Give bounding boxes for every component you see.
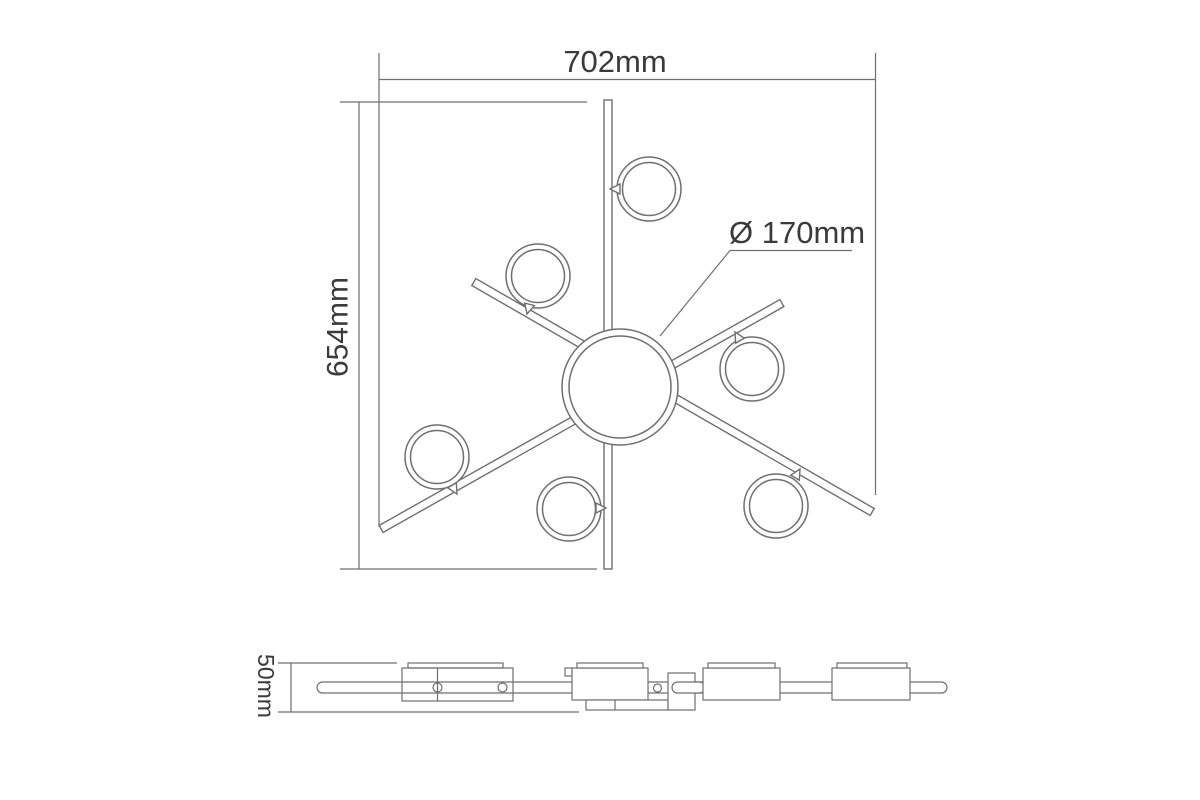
lamp-ring-5-outer xyxy=(537,477,601,541)
lamp-ring-5 xyxy=(537,477,606,541)
technical-drawing: 702mm 654mm Ø 170mm xyxy=(0,0,1200,800)
side-height-dimension-label: 50mm xyxy=(253,654,279,718)
width-dimension-label: 702mm xyxy=(563,44,666,79)
height-dimension-label: 654mm xyxy=(322,277,355,377)
center-disc-outer xyxy=(562,329,678,445)
side-housing-d-body xyxy=(832,668,910,700)
side-housing-c xyxy=(703,663,780,700)
lamp-ring-3-outer xyxy=(720,337,784,401)
lamp-ring-1-outer xyxy=(617,157,681,221)
side-housing-a-cap xyxy=(408,663,503,668)
side-housing-c-body xyxy=(703,668,780,700)
lamp-ring-1 xyxy=(610,157,681,221)
disc-diameter-leader-line xyxy=(660,251,852,337)
disc-diameter-label: Ø 170mm xyxy=(729,215,865,250)
side-under-box xyxy=(586,700,668,710)
lamp-ring-6 xyxy=(744,467,808,539)
lamp-ring-6-outer xyxy=(744,474,808,538)
side-center-rod-stub xyxy=(672,682,705,693)
side-housing-c-cap xyxy=(708,663,775,668)
side-housing-d xyxy=(832,663,910,700)
lamp-ring-2-outer xyxy=(506,244,570,308)
side-housing-b-body xyxy=(572,668,648,700)
side-housing-b-notch xyxy=(565,668,572,676)
side-view: 50mm xyxy=(253,654,947,718)
top-view-fixture xyxy=(379,100,874,569)
lamp-ring-4-outer xyxy=(405,425,469,489)
side-housing-b-cap xyxy=(577,663,643,668)
drawing-page: 702mm 654mm Ø 170mm xyxy=(0,0,1200,800)
center-disc xyxy=(562,329,678,445)
lamp-ring-3 xyxy=(720,330,784,402)
side-housing-d-cap xyxy=(837,663,907,668)
